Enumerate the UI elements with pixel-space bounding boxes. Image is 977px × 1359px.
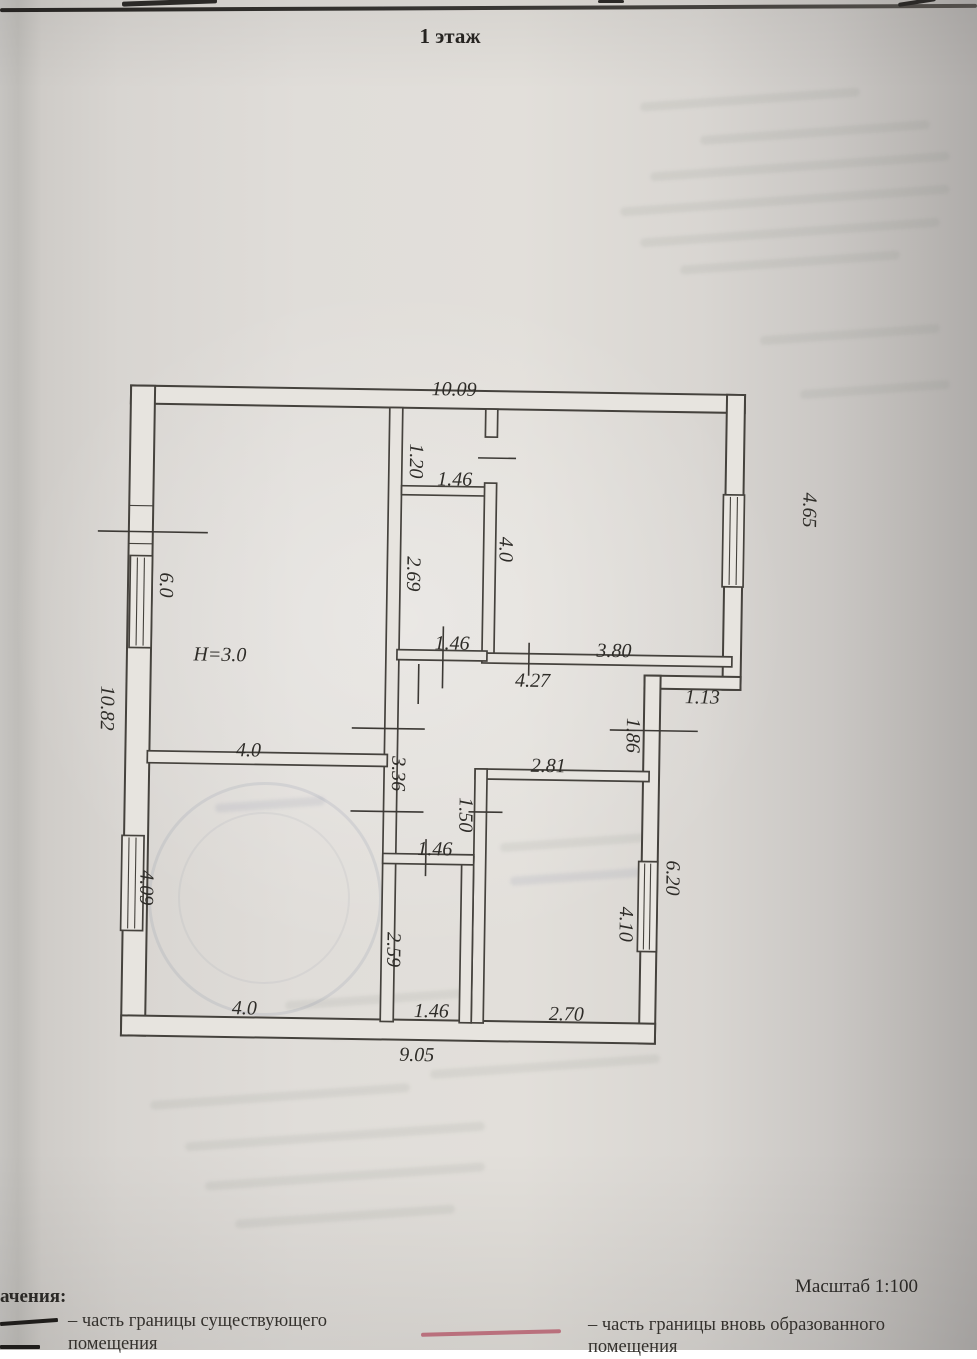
- window-right-lower: [637, 861, 657, 951]
- dim-label-trroom-right: 4.65: [798, 478, 821, 542]
- dim-label-trroom-left: 4.0: [494, 517, 517, 581]
- dim-label-right-620: 6.20: [661, 846, 684, 910]
- dim-label-left-total: 10.82: [96, 676, 119, 740]
- floor-plan: 10.09 1.46 1.46 4.27 3.80 1.13 H=3.0 4.0…: [0, 0, 977, 1359]
- scanned-page: 1 этаж: [0, 0, 977, 1350]
- legend-line-existing-partial: [0, 1345, 40, 1349]
- dim-label-blroom-left: 4.09: [135, 856, 158, 920]
- dimension-tick: [478, 458, 516, 459]
- dim-label-brroom-top: 2.81: [513, 753, 583, 778]
- dim-label-hall-width: 4.27: [497, 668, 567, 693]
- dim-label-step-width: 1.13: [667, 685, 737, 710]
- dim-label-bmroom-height: 2.59: [382, 917, 405, 981]
- dim-label-wall-336: 3.36: [387, 741, 410, 805]
- dimension-tick: [418, 664, 419, 704]
- dimension-tick: [350, 811, 423, 812]
- legend-heading-cut: ачения:: [0, 1286, 66, 1308]
- dim-label-bottom-width: 9.05: [381, 1042, 451, 1067]
- legend-existing-label-line1: – часть границы существующего: [68, 1310, 327, 1332]
- window-left-upper: [129, 555, 152, 647]
- wall-outer-left: [121, 385, 155, 1035]
- dim-label-brroom-right: 4.10: [614, 892, 637, 956]
- dimension-tick: [98, 531, 208, 533]
- dim-label-right-186: 1.86: [621, 703, 644, 767]
- dim-label-brroom-bottom: 2.70: [531, 1002, 601, 1027]
- dim-label-left-150: 1.50: [454, 783, 477, 847]
- wall-trroom-left-upper: [485, 409, 497, 437]
- ceiling-height-label: H=3.0: [180, 642, 260, 667]
- dim-label-bmroom-bottom: 1.46: [396, 999, 466, 1024]
- dim-label-corridor-width: 1.46: [417, 631, 487, 656]
- dim-label-top-width: 10.09: [419, 377, 489, 402]
- legend-new-label-line2: помещения: [588, 1336, 677, 1358]
- dim-label-bigroom-bottom: 4.0: [213, 738, 283, 763]
- wall-bmroom-right: [459, 857, 474, 1023]
- dim-label-trroom-bottom: 3.80: [579, 638, 649, 663]
- dim-label-blroom-bottom: 4.0: [209, 996, 279, 1021]
- window-right-top: [722, 495, 744, 587]
- dim-label-corridor-height: 2.69: [402, 542, 425, 606]
- floor-plan-drawing: [0, 0, 977, 1359]
- legend-new-label-line1: – часть границы вновь образованного: [588, 1314, 885, 1336]
- dim-label-bigroom-left: 6.0: [155, 553, 178, 617]
- dim-label-small-room-width: 1.46: [420, 467, 490, 492]
- legend-existing-label-line2: помещения: [68, 1333, 157, 1355]
- dim-label-small-room-height: 1.20: [404, 429, 427, 493]
- dimension-tick: [352, 728, 425, 729]
- scale-label: Масштаб 1:100: [795, 1276, 918, 1298]
